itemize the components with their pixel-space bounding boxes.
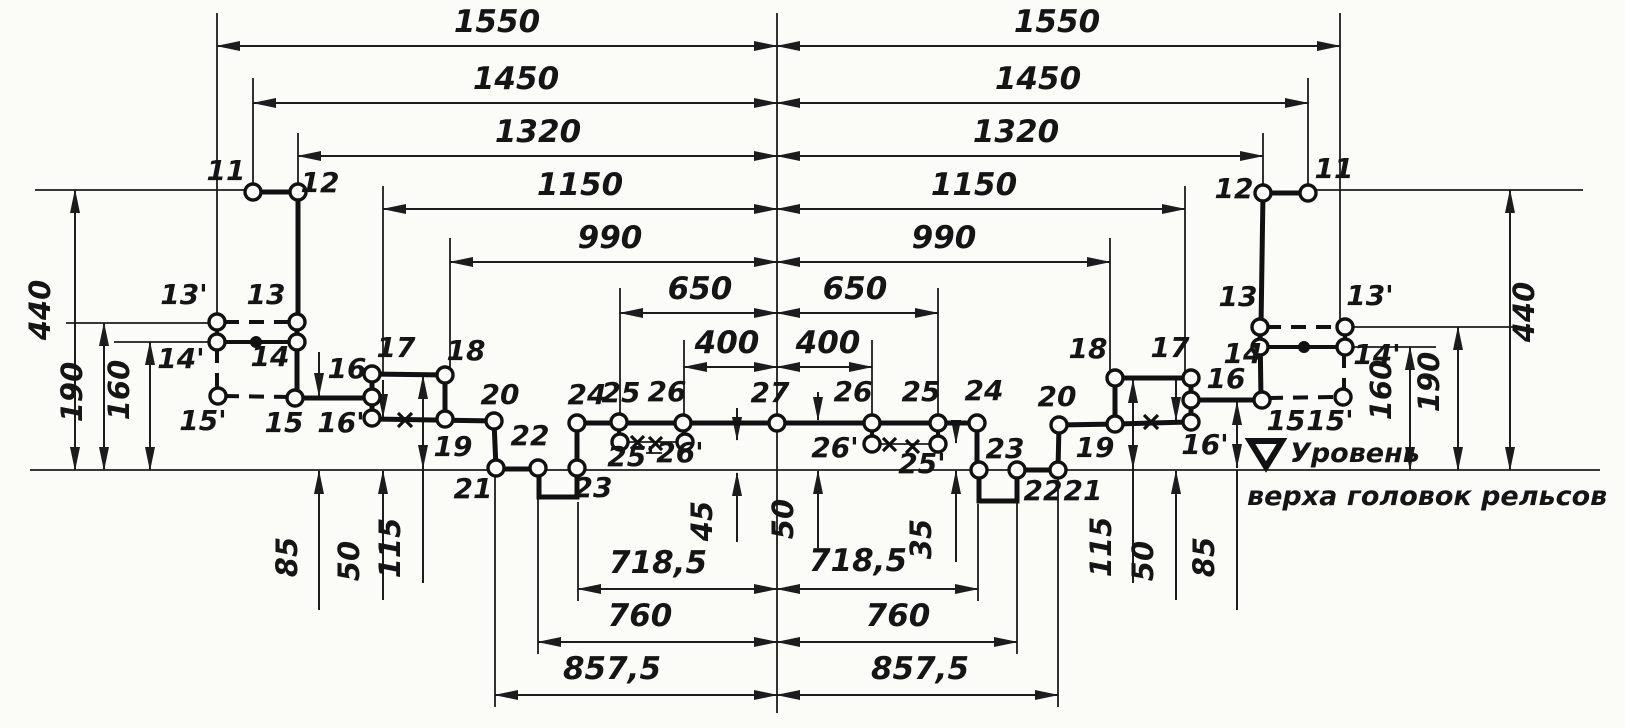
diagram-canvas: 1550 1550 1450 1450 1320 1320 1150 1150 … — [0, 0, 1625, 728]
dim-115-right: 115 — [1084, 517, 1118, 578]
dim-1450-left: 1450 — [473, 61, 559, 97]
point-16p-left: 16' — [317, 406, 365, 439]
point-12-right: 12 — [1215, 172, 1254, 205]
point-24-right: 24 — [965, 374, 1004, 407]
point-19-right: 19 — [1076, 431, 1115, 464]
dim-50-right: 50 — [1126, 541, 1160, 581]
point-14-left: 14 — [251, 340, 290, 373]
dim-115-left: 115 — [373, 518, 407, 579]
dim-190-right: 190 — [1412, 352, 1446, 413]
dim-1320-left: 1320 — [495, 114, 581, 150]
dim-440-right: 440 — [1507, 282, 1541, 344]
dim-1550-right: 1550 — [1014, 4, 1100, 40]
point-labels: 11 12 13' 13 14' 14 15' 15 16 16' 17 18 … — [157, 152, 1401, 507]
point-25-right: 25 — [902, 375, 941, 408]
center-dot-right — [1298, 341, 1310, 353]
horizontal-dimension-lines — [217, 46, 1340, 695]
point-11-left: 11 — [207, 154, 246, 187]
point-14-right: 14 — [1224, 337, 1263, 370]
dim-440-left: 440 — [23, 280, 57, 342]
point-26p-right: 26' — [811, 431, 859, 464]
dim-1450-right: 1450 — [995, 61, 1081, 97]
point-22-left: 22 — [511, 419, 550, 452]
dim-400-right: 400 — [795, 325, 861, 361]
point-18-left: 18 — [447, 334, 486, 367]
dim-1550-left: 1550 — [454, 4, 540, 40]
point-14p-left: 14' — [157, 342, 205, 375]
point-21-right: 21 — [1064, 474, 1103, 507]
rail-level-caption-line1: Уровень — [1290, 438, 1420, 469]
point-17-left: 17 — [377, 331, 416, 364]
point-13-right: 13 — [1219, 280, 1258, 313]
dim-50-left: 50 — [332, 541, 366, 581]
point-26-right: 26 — [834, 375, 873, 408]
point-19-left: 19 — [434, 430, 473, 463]
dim-35-right: 35 — [904, 519, 938, 559]
point-20-left: 20 — [481, 378, 520, 411]
point-14p-right: 14' — [1353, 338, 1401, 371]
dim-160-left: 160 — [102, 360, 136, 421]
point-15p-left: 15' — [179, 404, 227, 437]
rail-level-caption: Уровень верха головок рельсов — [1247, 438, 1607, 512]
point-13p-left: 13' — [160, 278, 208, 311]
dim-990-left: 990 — [578, 220, 643, 256]
dim-45-center: 45 — [685, 501, 719, 542]
dim-718-right: 718,5 — [809, 543, 907, 579]
point-12-left: 12 — [301, 166, 340, 199]
dim-760-right: 760 — [866, 598, 931, 634]
dim-857-right: 857,5 — [871, 651, 969, 687]
dim-650-right: 650 — [823, 271, 888, 307]
point-20-right: 20 — [1038, 380, 1077, 413]
point-15p-right: 15' — [1306, 404, 1354, 437]
point-26-left: 26 — [648, 375, 687, 408]
point-23-right: 23 — [986, 432, 1025, 465]
point-13p-right: 13' — [1346, 279, 1394, 312]
dim-1150-right: 1150 — [931, 167, 1017, 203]
point-16p-right: 16' — [1181, 428, 1229, 461]
dim-400-left: 400 — [694, 325, 760, 361]
point-25p-right: 25' — [898, 447, 946, 480]
rail-level-mark — [1250, 441, 1282, 467]
point-22-right: 22 — [1024, 474, 1063, 507]
point-25-left: 25 — [602, 376, 641, 409]
dim-760-left: 760 — [608, 598, 673, 634]
point-25p-left: 25' — [607, 440, 655, 473]
dim-1320-right: 1320 — [973, 114, 1059, 150]
point-27: 27 — [751, 376, 790, 409]
dim-857-left: 857,5 — [563, 651, 661, 687]
dim-1150-left: 1150 — [537, 167, 623, 203]
point-16-left: 16 — [328, 352, 367, 385]
clearance-diagram: 1550 1550 1450 1450 1320 1320 1150 1150 … — [0, 0, 1625, 728]
point-26p-left: 26' — [656, 436, 704, 469]
dim-85-right: 85 — [1187, 537, 1221, 577]
point-11-right: 11 — [1315, 152, 1354, 185]
dim-85-left: 85 — [270, 537, 304, 577]
point-13-left: 13 — [247, 278, 286, 311]
point-18-right: 18 — [1069, 332, 1108, 365]
rail-level-caption-line2: верха головок рельсов — [1247, 481, 1607, 512]
dim-190-left: 190 — [55, 362, 89, 423]
point-23-left: 23 — [574, 471, 613, 504]
dim-718-left: 718,5 — [609, 545, 707, 581]
point-15-left: 15 — [265, 406, 304, 439]
point-21-left: 21 — [454, 472, 493, 505]
point-17-right: 17 — [1151, 331, 1190, 364]
dim-50-center: 50 — [766, 499, 800, 539]
dim-650-left: 650 — [668, 271, 733, 307]
point-15-right: 15 — [1267, 404, 1306, 437]
dim-990-right: 990 — [912, 220, 977, 256]
